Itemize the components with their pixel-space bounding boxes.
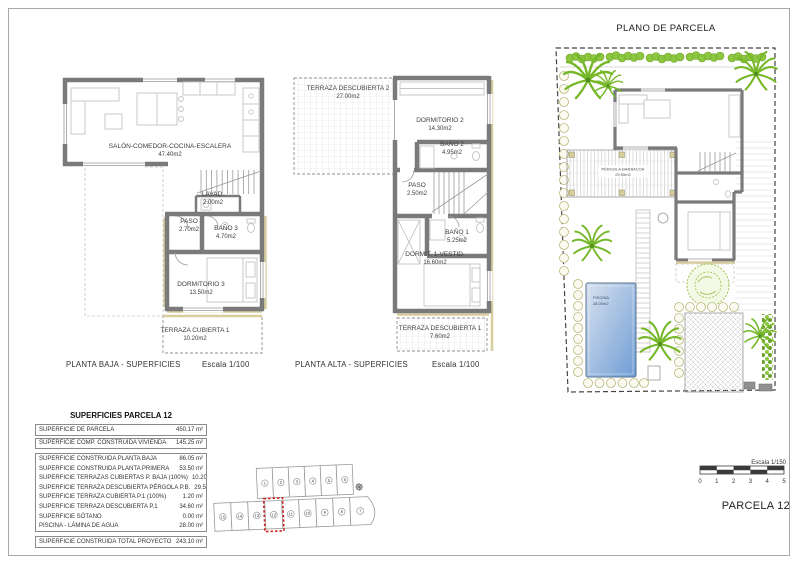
summary-table: SUPERFICIE DE PARCELA450.17 m² SUPERFICI… xyxy=(35,424,207,550)
pergola-zone-dashed xyxy=(85,167,163,316)
room-label-paso-pa: PASO 2.50m2 xyxy=(407,181,427,199)
site-plan-drawing: PÉRGOLA-BARBACOA 29.55m2 xyxy=(548,42,788,394)
svg-text:2: 2 xyxy=(732,479,736,485)
gravel-terrace xyxy=(685,313,743,392)
table-group-detail: SUPERFICIE CONSTRUIDA PLANTA BAJA86.05 m… xyxy=(35,453,207,532)
pergola-label: PÉRGOLA-BARBACOA xyxy=(602,167,645,172)
room-label-paso-pb: PASO 2.70m2 xyxy=(179,217,199,235)
pergola-area: 29.55m2 xyxy=(615,172,631,177)
room-label-dormitorio1: DORMIT. 1-VESTID. 16.60m2 xyxy=(405,250,465,268)
table-row: SUPERFICIE TERRAZA CUBIERTA P.1 (100%)1.… xyxy=(36,493,206,503)
table-row: SUPERFICIE TERRAZAS CUBIERTAS P. BAJA (1… xyxy=(36,473,206,483)
table-row-total: SUPERFICIE CONSTRUIDA TOTAL PROYECTO243.… xyxy=(35,536,207,548)
room-label-salon: SALÓN-COMEDOR-COCINA-ESCALERA 47.40m2 xyxy=(109,142,231,160)
graphic-scale-bar: Escala 1/150 0 1 2 3 4 5 xyxy=(698,456,790,490)
summary-table-title: SUPERFICIES PARCELA 12 xyxy=(35,411,207,420)
planta-baja-caption: PLANTA BAJA - SUPERFICIES xyxy=(66,360,180,369)
table-row: SUPERFICIE CONSTRUIDA PLANTA PRIMERA53.5… xyxy=(36,464,206,474)
stairs-icon xyxy=(432,172,488,214)
svg-text:5: 5 xyxy=(782,479,786,485)
planta-alta-drawing xyxy=(292,66,517,358)
table-row: SUPERFICIE COMP. CONSTRUIDA VIVIENDA145.… xyxy=(35,438,207,450)
room-label-bano2: BAÑO 2 4.95m2 xyxy=(440,140,464,158)
room-label-bano3: BAÑO 3 4.70m2 xyxy=(214,224,238,242)
svg-text:4: 4 xyxy=(766,479,770,485)
pergola-barbacoa: PÉRGOLA-BARBACOA 29.55m2 xyxy=(567,150,677,197)
site-plan-title: PLANO DE PARCELA xyxy=(560,23,772,34)
pool-area: 28.00m2 xyxy=(593,301,609,306)
survey-marker-icon xyxy=(355,483,363,491)
pool-label: PISCINA xyxy=(593,295,609,300)
planta-alta-caption: PLANTA ALTA - SUPERFICIES xyxy=(295,360,408,369)
svg-text:0: 0 xyxy=(698,479,702,485)
scale-bar-ticks: 0 1 2 3 4 5 xyxy=(698,479,786,485)
scale-bar-label: Escala 1/150 xyxy=(751,460,786,466)
scale-bar-checker xyxy=(700,466,784,474)
palm-tree-icon xyxy=(573,226,611,261)
parcel-title: PARCELA 12 xyxy=(714,500,790,512)
planta-baja-drawing xyxy=(55,66,290,358)
key-plan-top-row xyxy=(256,464,353,498)
planta-alta-scale: Escala 1/100 xyxy=(432,360,479,369)
garden-steps-path xyxy=(636,210,668,380)
key-plan-drawing: 1 2 3 4 5 6 15 14 13 12 11 10 9 8 7 xyxy=(210,443,468,555)
room-label-terraza-cubierta1: TERRAZA CUBIERTA 1 10.20m2 xyxy=(160,326,229,344)
room-label-terraza-descubierta2: TERRAZA DESCUBIERTA 2 27.00m2 xyxy=(307,84,389,102)
table-row: SUPERFICIE SÓTANO0.00 m² xyxy=(36,512,206,522)
room-label-terraza-descubierta1: TERRAZA DESCUBIERTA 1 7.60m2 xyxy=(399,324,481,342)
room-label-dormitorio3: DORMITORIO 3 13.50m2 xyxy=(177,280,225,298)
table-row: PISCINA - LÁMINA DE AGUA28.00 m² xyxy=(36,521,206,531)
table-row: SUPERFICIE DE PARCELA450.17 m² xyxy=(35,424,207,436)
svg-text:3: 3 xyxy=(749,479,753,485)
round-tree-icon xyxy=(687,264,729,306)
planta-baja-scale: Escala 1/100 xyxy=(202,360,249,369)
room-label-bano1: BAÑO 1 5.25m2 xyxy=(445,228,469,246)
room-label-dormitorio2: DORMITORIO 2 14.30m2 xyxy=(416,116,464,134)
table-row: SUPERFICIE CONSTRUIDA PLANTA BAJA86.05 m… xyxy=(36,454,206,464)
svg-text:1: 1 xyxy=(715,479,719,485)
table-row: SUPERFICIE TERRAZA DESCUBIERTA PÉRGOLA P… xyxy=(36,483,206,493)
house-stairs-icon xyxy=(698,152,736,172)
swimming-pool: PISCINA 28.00m2 xyxy=(586,283,636,377)
room-label-lavadero: LAVAD. 2.00m2 xyxy=(202,190,224,208)
table-row: SUPERFICIE TERRAZA DESCUBIERTA P.134.60 … xyxy=(36,502,206,512)
